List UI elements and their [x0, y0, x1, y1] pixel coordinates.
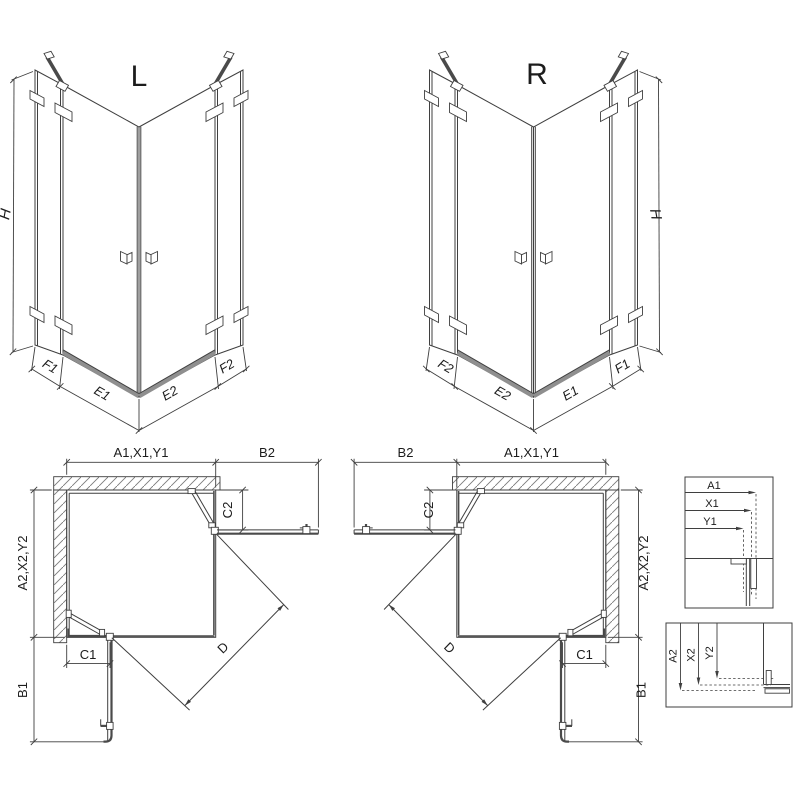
- detail-y1-label: Y1: [703, 516, 716, 528]
- iso-left-dim-f2: F2: [216, 355, 237, 376]
- iso-right-dim-f2: F2: [435, 356, 456, 377]
- iso-left-title: L: [131, 60, 148, 93]
- wall-hatch-side-left-plan: [54, 490, 67, 643]
- iso-view-right: R H F2 E2 E1 F1: [423, 51, 665, 433]
- plan-right-height-label: A2,X2,Y2: [636, 536, 651, 591]
- iso-view-left: L H F1 E1 E2 F2: [0, 51, 249, 433]
- wall-hatch-top-left-plan: [54, 477, 220, 490]
- detail-y2-label: Y2: [704, 646, 716, 659]
- plan-right-b1-label: B1: [634, 682, 649, 698]
- iso-left-dim-e2: E2: [159, 382, 181, 403]
- detail-box-vertical-dims: A2 X2 Y2: [666, 623, 792, 707]
- iso-right-dim-e2: E2: [492, 383, 514, 404]
- plan-left-d-label: D: [214, 639, 231, 656]
- plan-left-height-label: A2,X2,Y2: [15, 536, 30, 591]
- plan-view-left: A1,X1,Y1 B2 C2 A2,X2,Y2 C1 B1 D: [15, 445, 322, 745]
- iso-left-dim-e1: E1: [92, 383, 113, 404]
- plan-right-d-label: D: [441, 639, 458, 656]
- plan-left-b2-label: B2: [259, 445, 275, 460]
- plan-view-right: A1,X1,Y1 B2 C2 A2,X2,Y2 C1 B1 D: [351, 445, 651, 745]
- detail-x1-label: X1: [705, 498, 718, 510]
- iso-right-dim-e1: E1: [560, 383, 581, 404]
- plan-left-c1-label: C1: [80, 647, 97, 662]
- iso-right-dim-f1: F1: [612, 356, 633, 377]
- detail-box-horizontal-dims: A1 X1 Y1: [685, 477, 773, 608]
- iso-left-height-label: H: [0, 207, 15, 221]
- plan-left-c2-label: C2: [220, 502, 235, 519]
- detail-a2-label: A2: [668, 649, 680, 662]
- plan-right-c1-label: C1: [576, 647, 593, 662]
- wall-hatch-side-right-plan: [606, 490, 619, 643]
- detail-a1-label: A1: [707, 480, 720, 492]
- iso-right-height-label: H: [646, 207, 665, 221]
- plan-right-b2-label: B2: [398, 445, 414, 460]
- iso-right-title: R: [526, 58, 548, 91]
- shower-enclosure-technical-drawing: L H F1 E1 E2 F2 R H F2 E2 E1 F1 A1,X1,Y1…: [0, 0, 800, 800]
- plan-left-width-label: A1,X1,Y1: [114, 445, 169, 460]
- iso-left-dim-f1: F1: [40, 356, 61, 377]
- plan-left-b1-label: B1: [15, 682, 30, 698]
- plan-right-width-label: A1,X1,Y1: [504, 445, 559, 460]
- detail-x2-label: X2: [686, 648, 698, 661]
- drawing-canvas: L H F1 E1 E2 F2 R H F2 E2 E1 F1 A1,X1,Y1…: [0, 0, 800, 800]
- wall-hatch-top-right-plan: [453, 477, 619, 490]
- plan-right-c2-label: C2: [421, 502, 436, 519]
